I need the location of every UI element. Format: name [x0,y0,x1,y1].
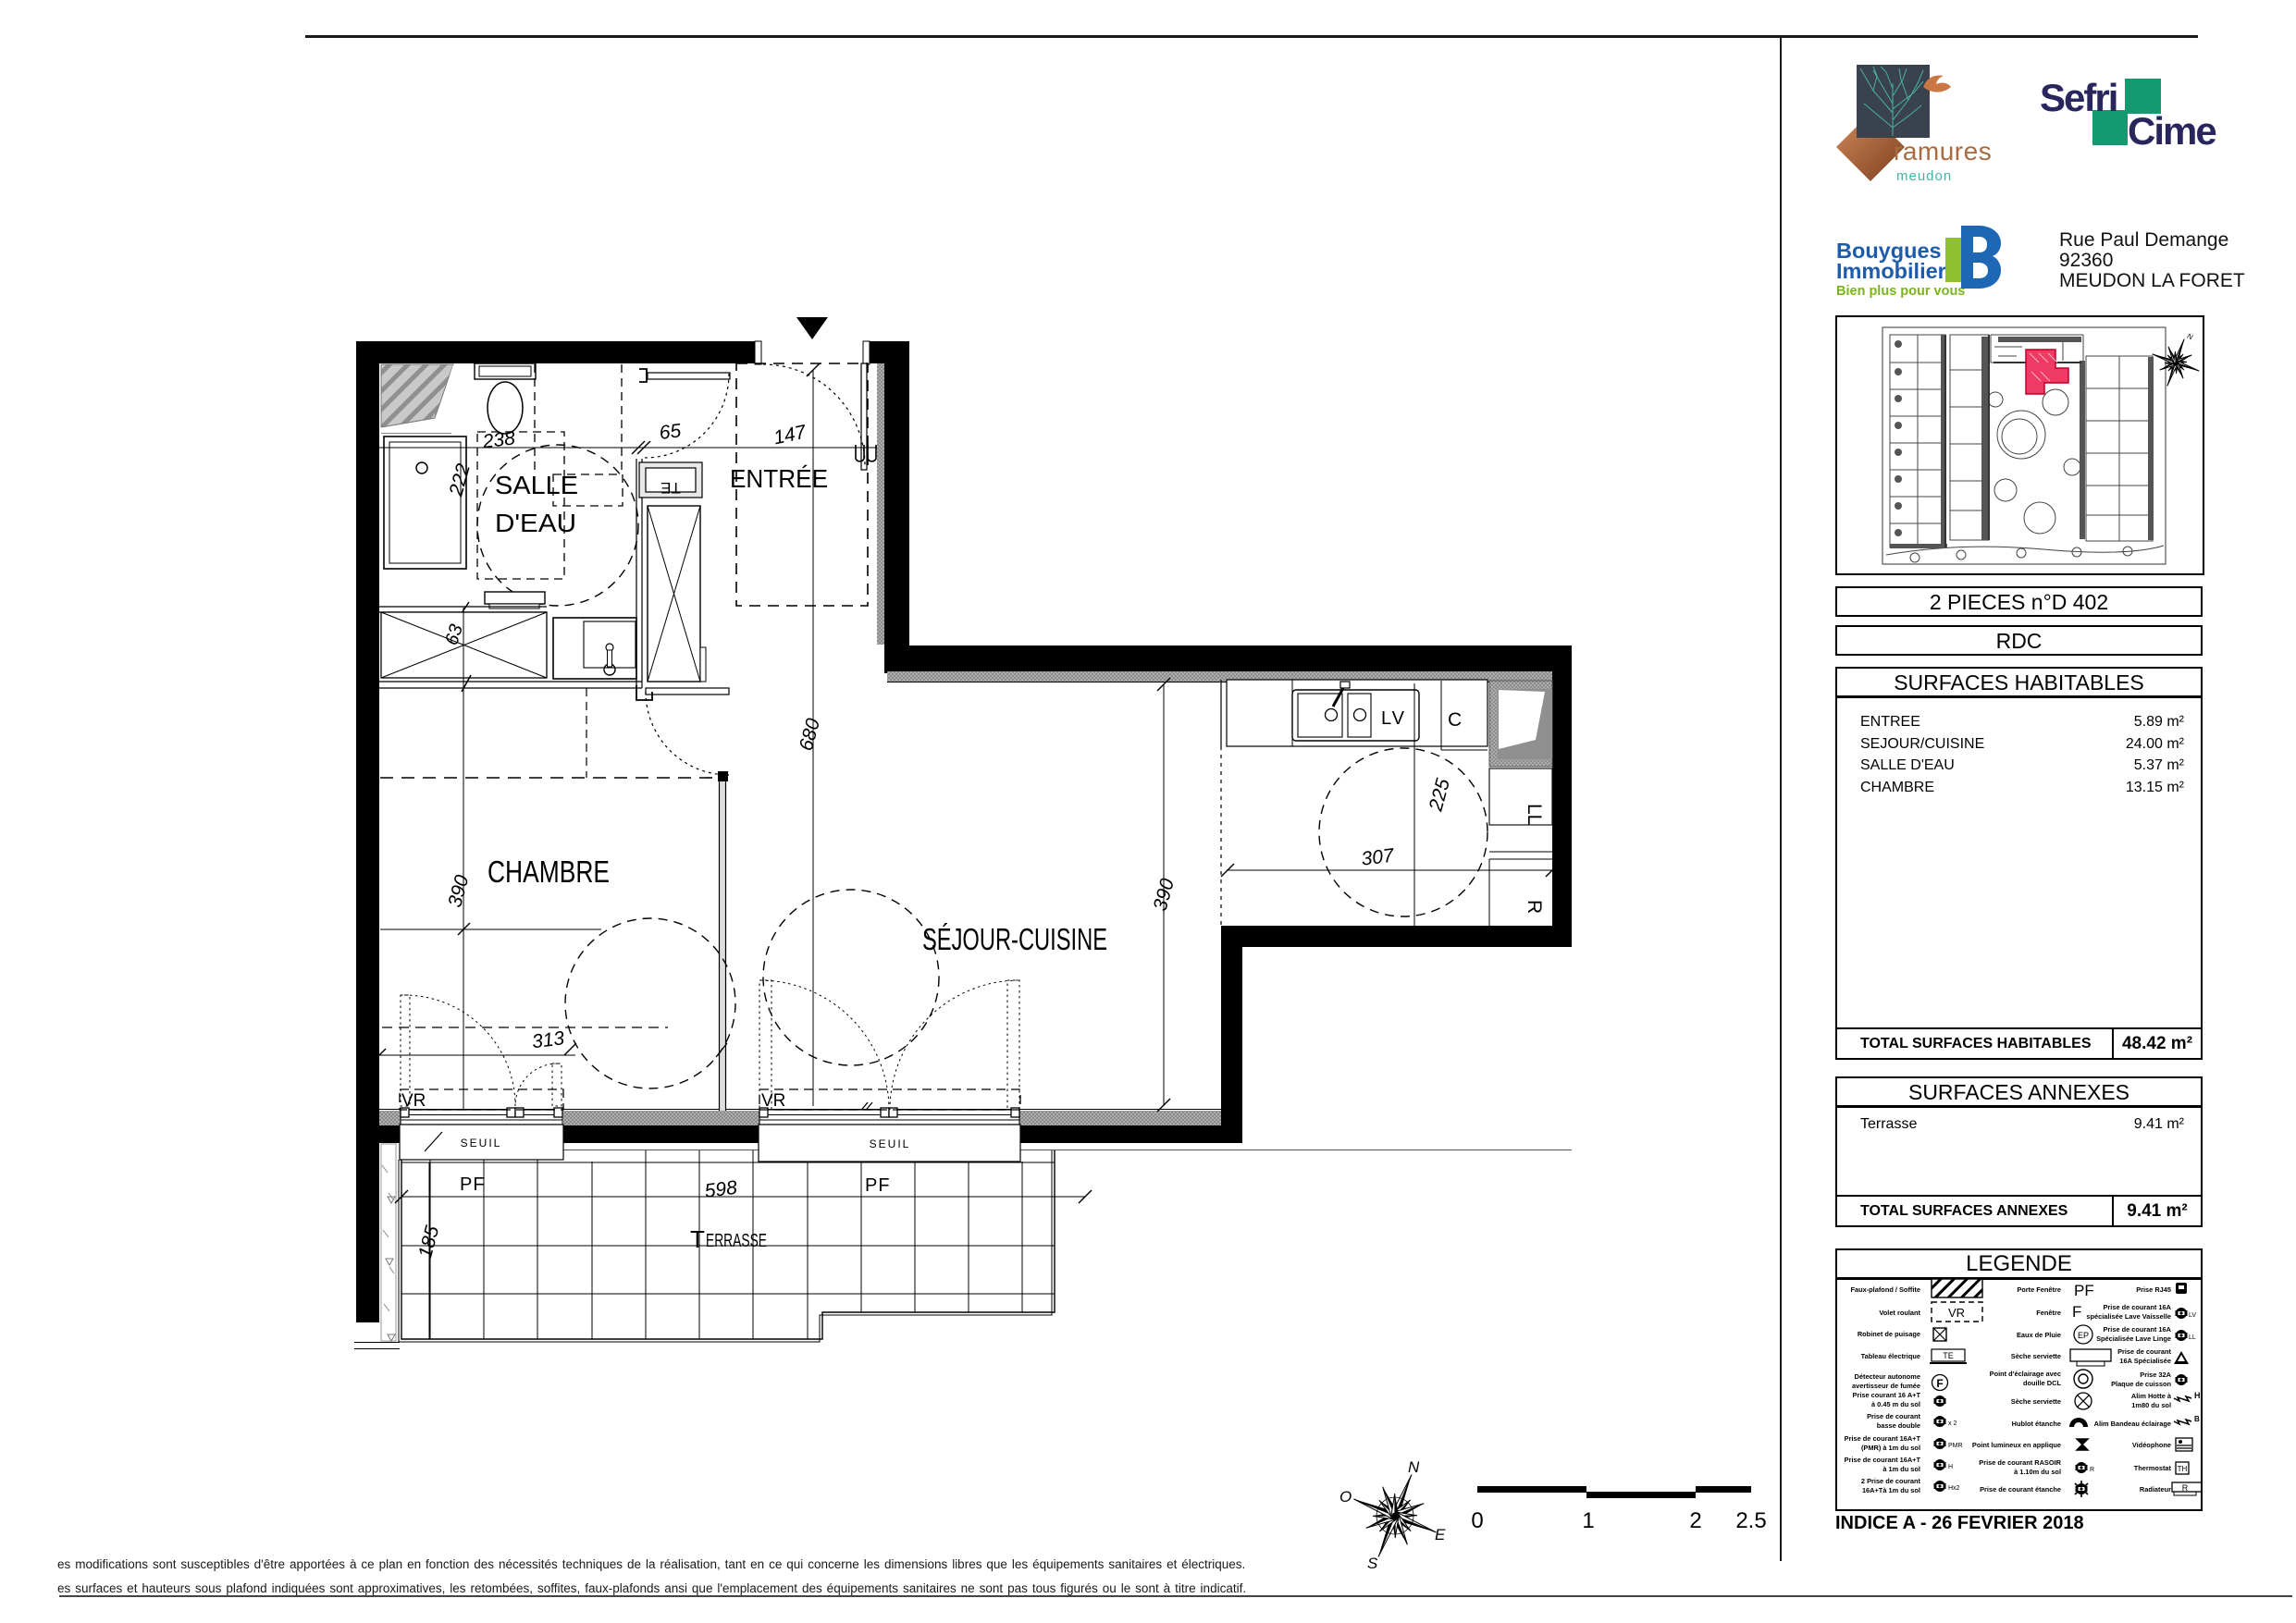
svg-text:avertisseur de fumée: avertisseur de fumée [1852,1382,1920,1390]
svg-text:1m80 du sol: 1m80 du sol [2131,1401,2171,1409]
svg-text:LV: LV [2189,1312,2196,1319]
svg-text:TH: TH [2178,1465,2188,1473]
svg-text:N: N [2186,332,2194,342]
svg-text:VR: VR [1948,1306,1965,1320]
svg-text:Faux-plafond / Soffite: Faux-plafond / Soffite [1850,1285,1920,1294]
svg-text:Prise de courant étanche: Prise de courant étanche [1980,1485,2061,1494]
svg-text:H: H [1948,1464,1953,1470]
svg-text:Porte Fenêtre: Porte Fenêtre [2017,1285,2061,1294]
svg-text:Prise de courant 16A: Prise de courant 16A [2103,1303,2171,1311]
svg-text:Hublot étanche: Hublot étanche [2012,1420,2061,1428]
svg-text:F: F [1936,1377,1943,1390]
svg-text:2 Prise de courant: 2 Prise de courant [1861,1477,1921,1485]
svg-text:Sèche serviette: Sèche serviette [2011,1397,2061,1406]
svg-text:à 1m du sol: à 1m du sol [1882,1465,1920,1473]
svg-text:Cime: Cime [2128,109,2216,153]
svg-text:Tableau électrique: Tableau électrique [1861,1352,1920,1360]
svg-text:B E: B E [2194,1415,2203,1423]
svg-text:Alim Bandeau éclairage: Alim Bandeau éclairage [2094,1420,2171,1428]
svg-text:Prise de courant 16A+T: Prise de courant 16A+T [1845,1456,1921,1464]
svg-text:Alim Hotte à: Alim Hotte à [2131,1392,2172,1400]
svg-text:16A+Tà 1m du sol: 16A+Tà 1m du sol [1862,1486,1920,1494]
svg-text:Prise de courant: Prise de courant [2117,1347,2171,1356]
svg-text:Prise courant 16 A+T: Prise courant 16 A+T [1853,1391,1921,1399]
svg-text:Radiateur: Radiateur [2140,1485,2171,1494]
svg-text:Sefri: Sefri [2040,76,2117,119]
svg-text:LL: LL [2189,1334,2196,1341]
svg-text:Vidéophone: Vidéophone [2132,1441,2171,1449]
svg-text:meudon: meudon [1896,168,1952,184]
svg-text:à 0.45 m du sol: à 0.45 m du sol [1871,1400,1920,1408]
svg-text:douille DCL: douille DCL [2023,1379,2062,1387]
svg-text:Prise de courant 16A+T: Prise de courant 16A+T [1845,1434,1921,1443]
svg-text:Prise de courant RASOIR: Prise de courant RASOIR [1979,1458,2061,1467]
svg-text:Thermostat: Thermostat [2134,1464,2172,1472]
svg-text:Point d'éclairage avec: Point d'éclairage avec [1990,1370,2061,1378]
svg-text:Prise RJ45: Prise RJ45 [2136,1285,2171,1294]
svg-text:H: H [2194,1391,2201,1400]
svg-text:R: R [2090,1467,2094,1473]
svg-text:Prise 32A: Prise 32A [2140,1371,2171,1379]
svg-text:Immobilier: Immobilier [1836,259,1946,283]
svg-text:Fenêtre: Fenêtre [2036,1309,2061,1317]
svg-text:Bien plus pour vous: Bien plus pour vous [1836,284,1965,299]
svg-text:PF: PF [2074,1282,2094,1299]
svg-text:Sèche serviette: Sèche serviette [2011,1352,2061,1360]
svg-text:Prise de courant 16A: Prise de courant 16A [2103,1325,2171,1334]
svg-text:x 2: x 2 [1948,1420,1957,1427]
svg-text:Point lumineux en applique: Point lumineux en applique [1972,1441,2061,1449]
svg-text:Spécialisée Lave Linge: Spécialisée Lave Linge [2096,1334,2171,1343]
svg-text:à 1.10m du sol: à 1.10m du sol [2014,1468,2061,1476]
svg-text:Prise de courant: Prise de courant [1867,1412,1920,1420]
svg-text:Eaux de Pluie: Eaux de Pluie [2017,1331,2061,1339]
svg-text:PMR: PMR [1948,1443,1963,1449]
svg-text:Volet roulant: Volet roulant [1879,1309,1920,1317]
svg-text:Détecteur autonome: Détecteur autonome [1855,1372,1920,1381]
svg-text:EP: EP [2078,1331,2089,1340]
svg-text:basse double: basse double [1877,1421,1920,1430]
svg-text:spécialisée Lave Vaisselle: spécialisée Lave Vaisselle [2086,1312,2171,1321]
svg-text:Plaque de cuisson: Plaque de cuisson [2111,1380,2171,1388]
svg-text:F: F [2072,1303,2081,1321]
svg-text:Hx2: Hx2 [1948,1485,1960,1492]
svg-text:Robinet de puisage: Robinet de puisage [1858,1330,1920,1338]
svg-text:TE: TE [1943,1351,1954,1360]
svg-text:16A Spécialisée: 16A Spécialisée [2119,1357,2171,1365]
svg-text:ramures: ramures [1894,137,1992,166]
svg-text:(PMR) à 1m du sol: (PMR) à 1m du sol [1861,1444,1920,1452]
